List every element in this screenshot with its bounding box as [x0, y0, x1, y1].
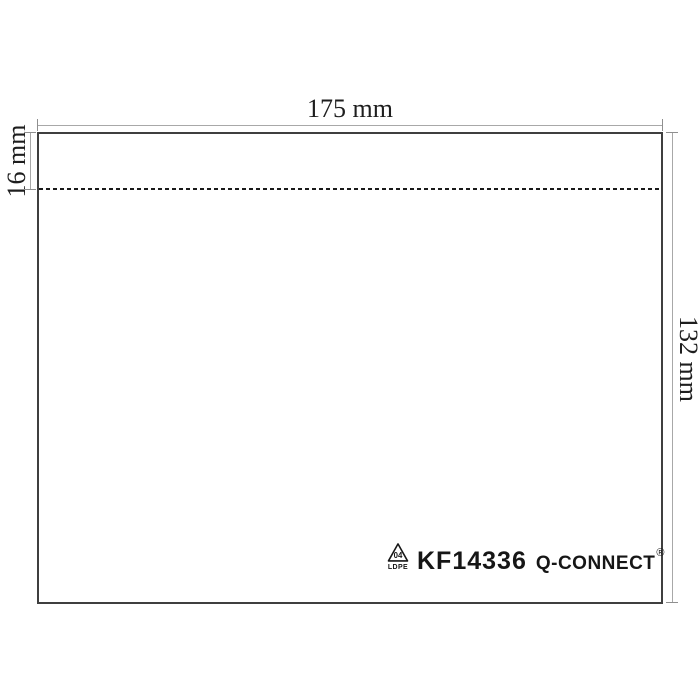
product-sku: KF14336: [417, 552, 527, 572]
brand-name: Q-CONNECT: [536, 556, 656, 571]
flap-dimension-label: 16 mm: [4, 125, 30, 198]
height-dimension-label: 132 mm: [675, 316, 700, 402]
width-dimension-line: [37, 125, 663, 126]
width-dimension-tick-right: [662, 119, 663, 131]
recycling-ldpe-icon: 04 LDPE: [386, 542, 410, 571]
flap-dimension-line: [30, 132, 31, 190]
width-dimension-tick-left: [37, 119, 38, 131]
brand-name-group: Q-CONNECT ®: [536, 556, 664, 571]
recycling-triangle-icon: 04: [387, 542, 409, 563]
product-dimension-diagram: 175 mm 16 mm 132 mm 04 LDPE KF14336 Q-CO…: [0, 0, 700, 700]
product-branding: 04 LDPE KF14336 Q-CONNECT ®: [386, 539, 664, 571]
material-label: LDPE: [388, 564, 408, 571]
height-dimension-line: [672, 132, 673, 603]
fold-dashed-line: [39, 188, 661, 190]
flap-dimension-tick-top: [24, 132, 36, 133]
recycling-code-text: 04: [394, 551, 403, 560]
envelope-outline: [37, 132, 663, 604]
width-dimension-label: 175 mm: [37, 96, 663, 122]
height-dimension-tick-top: [666, 132, 678, 133]
registered-trademark-symbol: ®: [656, 548, 664, 559]
flap-dimension-tick-bottom: [24, 189, 36, 190]
height-dimension-tick-bottom: [666, 602, 678, 603]
